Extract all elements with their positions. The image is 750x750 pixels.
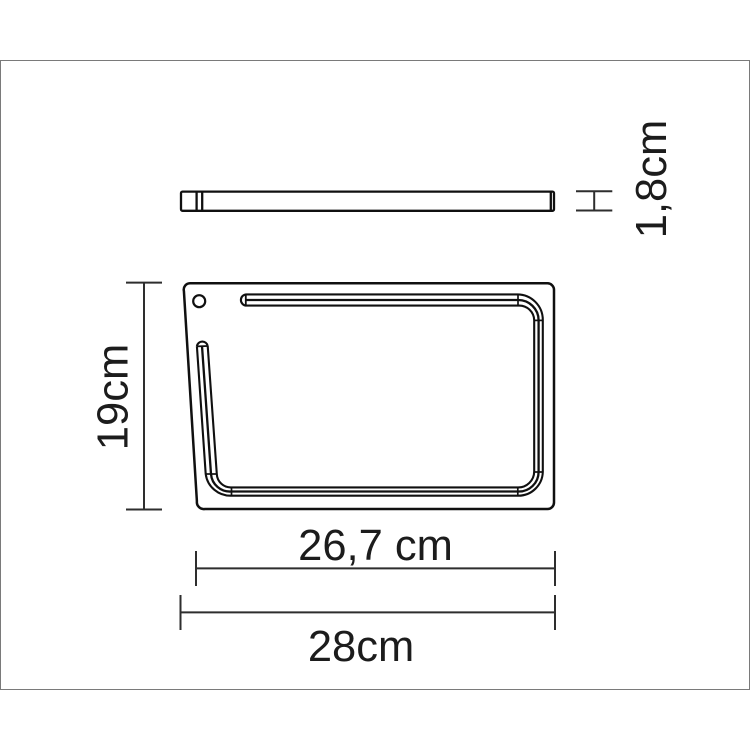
svg-text:19cm: 19cm — [89, 344, 137, 450]
svg-text:1,8cm: 1,8cm — [628, 120, 676, 238]
svg-text:26,7 cm: 26,7 cm — [298, 522, 453, 570]
svg-text:28cm: 28cm — [308, 623, 414, 671]
